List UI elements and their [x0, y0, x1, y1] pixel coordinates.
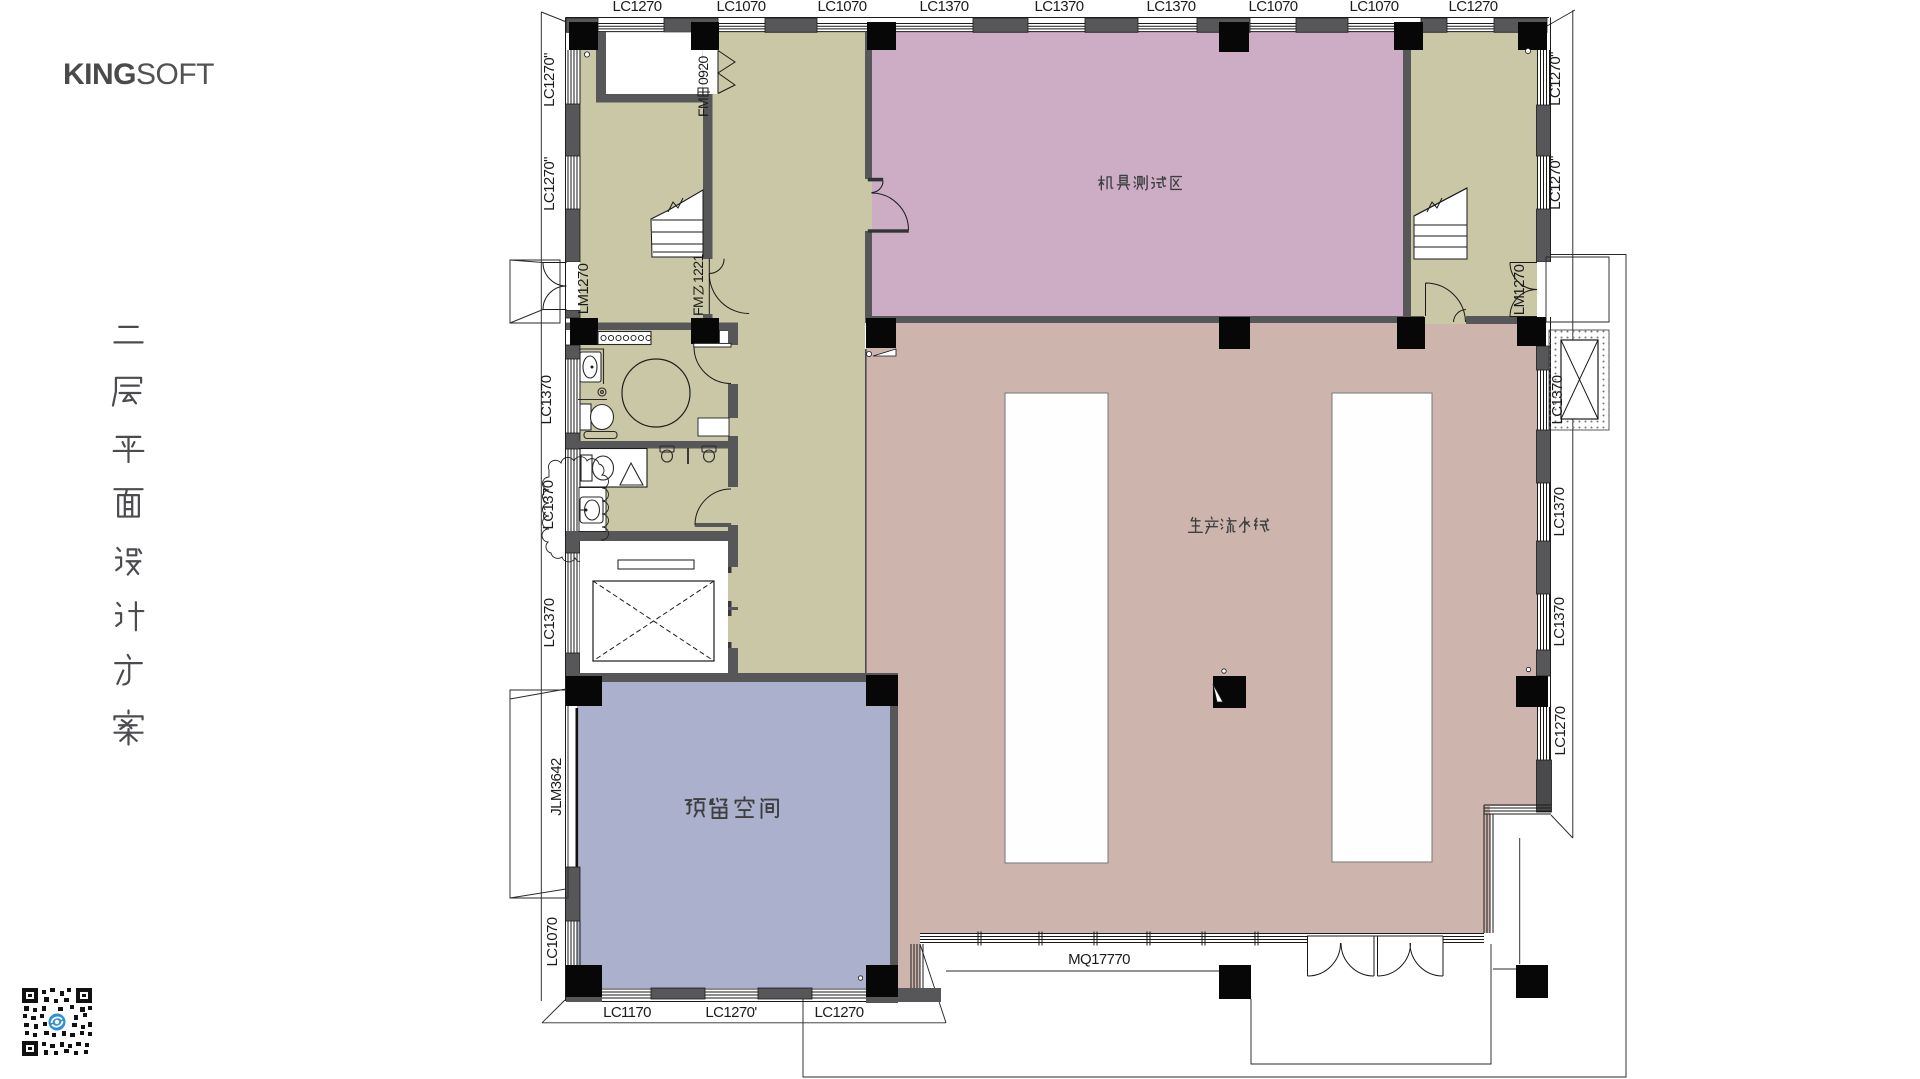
svg-text:LC1070: LC1070	[1249, 0, 1298, 15]
svg-text:LC1070: LC1070	[818, 0, 867, 15]
svg-text:LC1270: LC1270	[613, 0, 662, 15]
svg-text:LM1270: LM1270	[1511, 264, 1528, 315]
svg-text:LC1270: LC1270	[1552, 706, 1569, 755]
svg-text:0920: 0920	[695, 55, 711, 85]
svg-text:LC1370: LC1370	[1551, 597, 1568, 646]
svg-text:LC1270": LC1270"	[541, 157, 558, 211]
svg-text:FM: FM	[695, 98, 711, 117]
svg-text:FM: FM	[690, 297, 706, 316]
svg-text:LC1370: LC1370	[541, 598, 558, 647]
svg-text:LC1270: LC1270	[1449, 0, 1498, 15]
svg-text:LC1270": LC1270"	[1547, 156, 1564, 210]
svg-text:LC1270: LC1270	[815, 1004, 864, 1021]
svg-text:LM1270: LM1270	[575, 263, 592, 314]
svg-text:JLM3642: JLM3642	[548, 758, 565, 816]
svg-text:LC1370: LC1370	[1551, 487, 1568, 536]
svg-text:LC1370: LC1370	[1147, 0, 1196, 15]
svg-text:LC1070: LC1070	[717, 0, 766, 15]
svg-text:LC1270": LC1270"	[1547, 52, 1564, 106]
svg-text:KINGSOFT: KINGSOFT	[63, 58, 214, 91]
svg-text:MQ17770: MQ17770	[1068, 951, 1130, 968]
svg-text:LC1370: LC1370	[1549, 375, 1566, 424]
svg-text:1221: 1221	[690, 253, 706, 283]
svg-text:LC1270": LC1270"	[541, 53, 558, 107]
svg-text:LC1370: LC1370	[538, 375, 555, 424]
svg-text:LC1370: LC1370	[1035, 0, 1084, 15]
svg-text:LC1370: LC1370	[920, 0, 969, 15]
svg-text:LC1070: LC1070	[544, 917, 561, 966]
svg-text:LC1370: LC1370	[540, 480, 557, 529]
svg-text:LC1270': LC1270'	[705, 1004, 757, 1021]
svg-text:LC1070: LC1070	[1350, 0, 1399, 15]
svg-text:LC1170: LC1170	[603, 1004, 651, 1021]
